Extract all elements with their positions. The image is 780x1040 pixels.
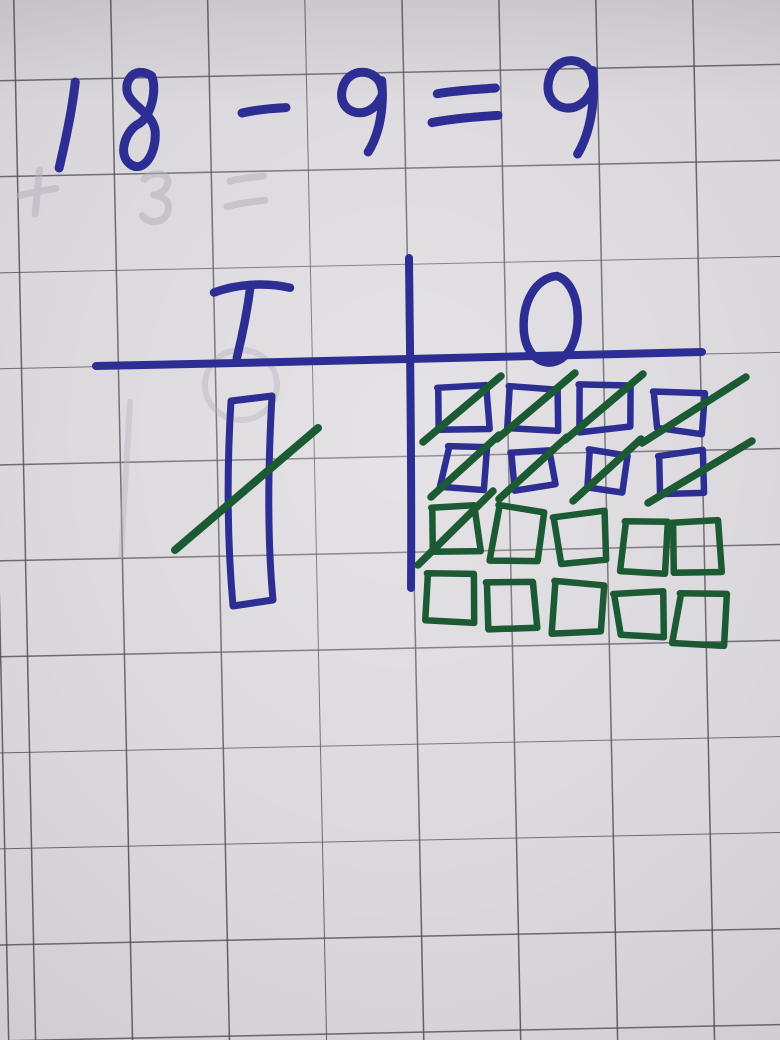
- glyph-9: [548, 61, 593, 154]
- ones-square: [552, 581, 605, 637]
- tens-rod: [175, 396, 318, 606]
- glyph-T: [214, 284, 290, 358]
- ones-row: [425, 572, 727, 646]
- chart-header-line: [96, 352, 702, 366]
- paper-background: [0, 0, 780, 1040]
- ones-square: [648, 441, 752, 503]
- glyph-3: [142, 174, 168, 222]
- chart-divider-line: [409, 258, 411, 588]
- ones-square: [642, 377, 746, 443]
- ones-square: [553, 511, 608, 565]
- ones-square: [418, 491, 493, 565]
- ones-row: [423, 373, 746, 443]
- ones-row: [418, 491, 722, 574]
- ones-square: [573, 439, 641, 501]
- ones-square: [672, 592, 727, 646]
- bleed-through-ghost-text: [20, 170, 265, 222]
- ones-square: [613, 591, 665, 639]
- tens-column-label: [214, 284, 290, 358]
- glyph-1: [59, 82, 75, 168]
- handwriting-layer: [0, 0, 780, 1040]
- glyph-8: [124, 72, 156, 166]
- glyph-+: [20, 170, 56, 214]
- ones-square: [431, 435, 499, 497]
- ones-square: [620, 520, 668, 574]
- ones-square: [486, 580, 537, 630]
- glyph-O: [524, 276, 578, 363]
- ones-row: [431, 435, 752, 503]
- glyph-=: [227, 176, 265, 207]
- glyph-=: [432, 88, 498, 123]
- equation-handwriting: [59, 61, 593, 168]
- ones-square: [499, 437, 567, 499]
- ones-squares: [418, 373, 752, 646]
- ones-column-label: [524, 276, 578, 363]
- place-value-chart: [96, 258, 752, 646]
- photographed-worksheet: { "title": "Handwritten subtraction work…: [0, 0, 780, 1040]
- ones-square: [565, 374, 643, 440]
- ones-square: [672, 520, 722, 574]
- ones-square: [497, 373, 575, 439]
- glyph--: [242, 108, 286, 113]
- glyph-9: [342, 72, 383, 152]
- ones-square: [490, 505, 545, 564]
- cross-out-stroke: [175, 428, 318, 550]
- ones-square: [423, 376, 501, 442]
- ones-square: [425, 572, 476, 623]
